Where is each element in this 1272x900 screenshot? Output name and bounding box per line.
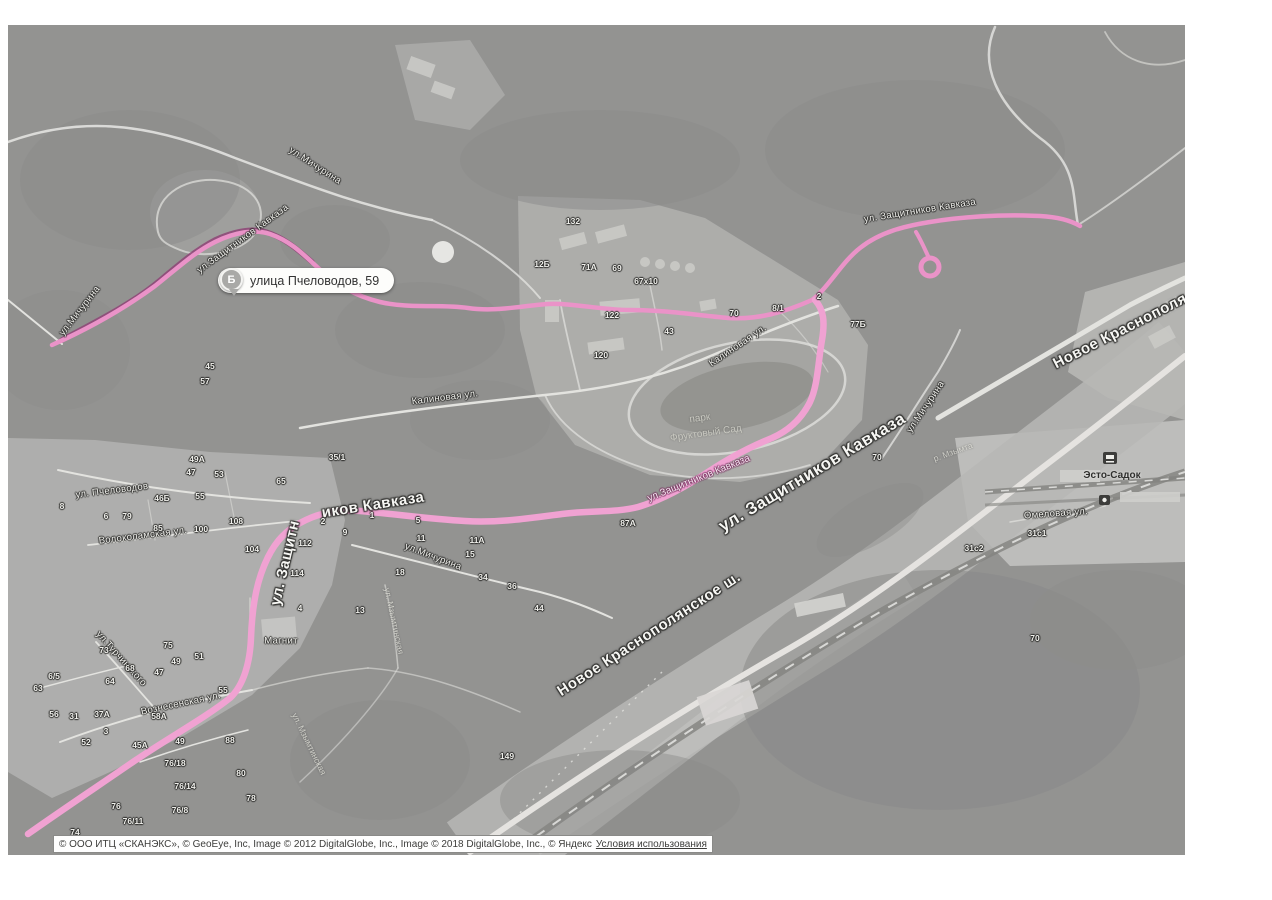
map-canvas [8,25,1185,855]
balloon-address-text: улица Пчеловодов, 59 [250,274,379,288]
route-point-b-balloon[interactable]: улица Пчеловодов, 59 [218,268,394,293]
route-point-b-icon[interactable]: Б [220,268,243,291]
map-viewport: ул.Мичуринаул.Защитников Кавказаул.Мичур… [8,25,1185,855]
map-attribution: © ООО ИТЦ «СКАНЭКС», © GeoEye, Inc, Imag… [53,835,713,853]
route-point-letter: Б [228,274,236,286]
terms-of-use-link[interactable]: Условия использования [596,839,707,850]
printed-map-page: ул.Мичуринаул.Защитников Кавказаул.Мичур… [0,0,1272,900]
poi-icon[interactable] [1099,495,1110,505]
railway-station-icon[interactable] [1103,452,1117,464]
attribution-text: © ООО ИТЦ «СКАНЭКС», © GeoEye, Inc, Imag… [59,839,592,850]
